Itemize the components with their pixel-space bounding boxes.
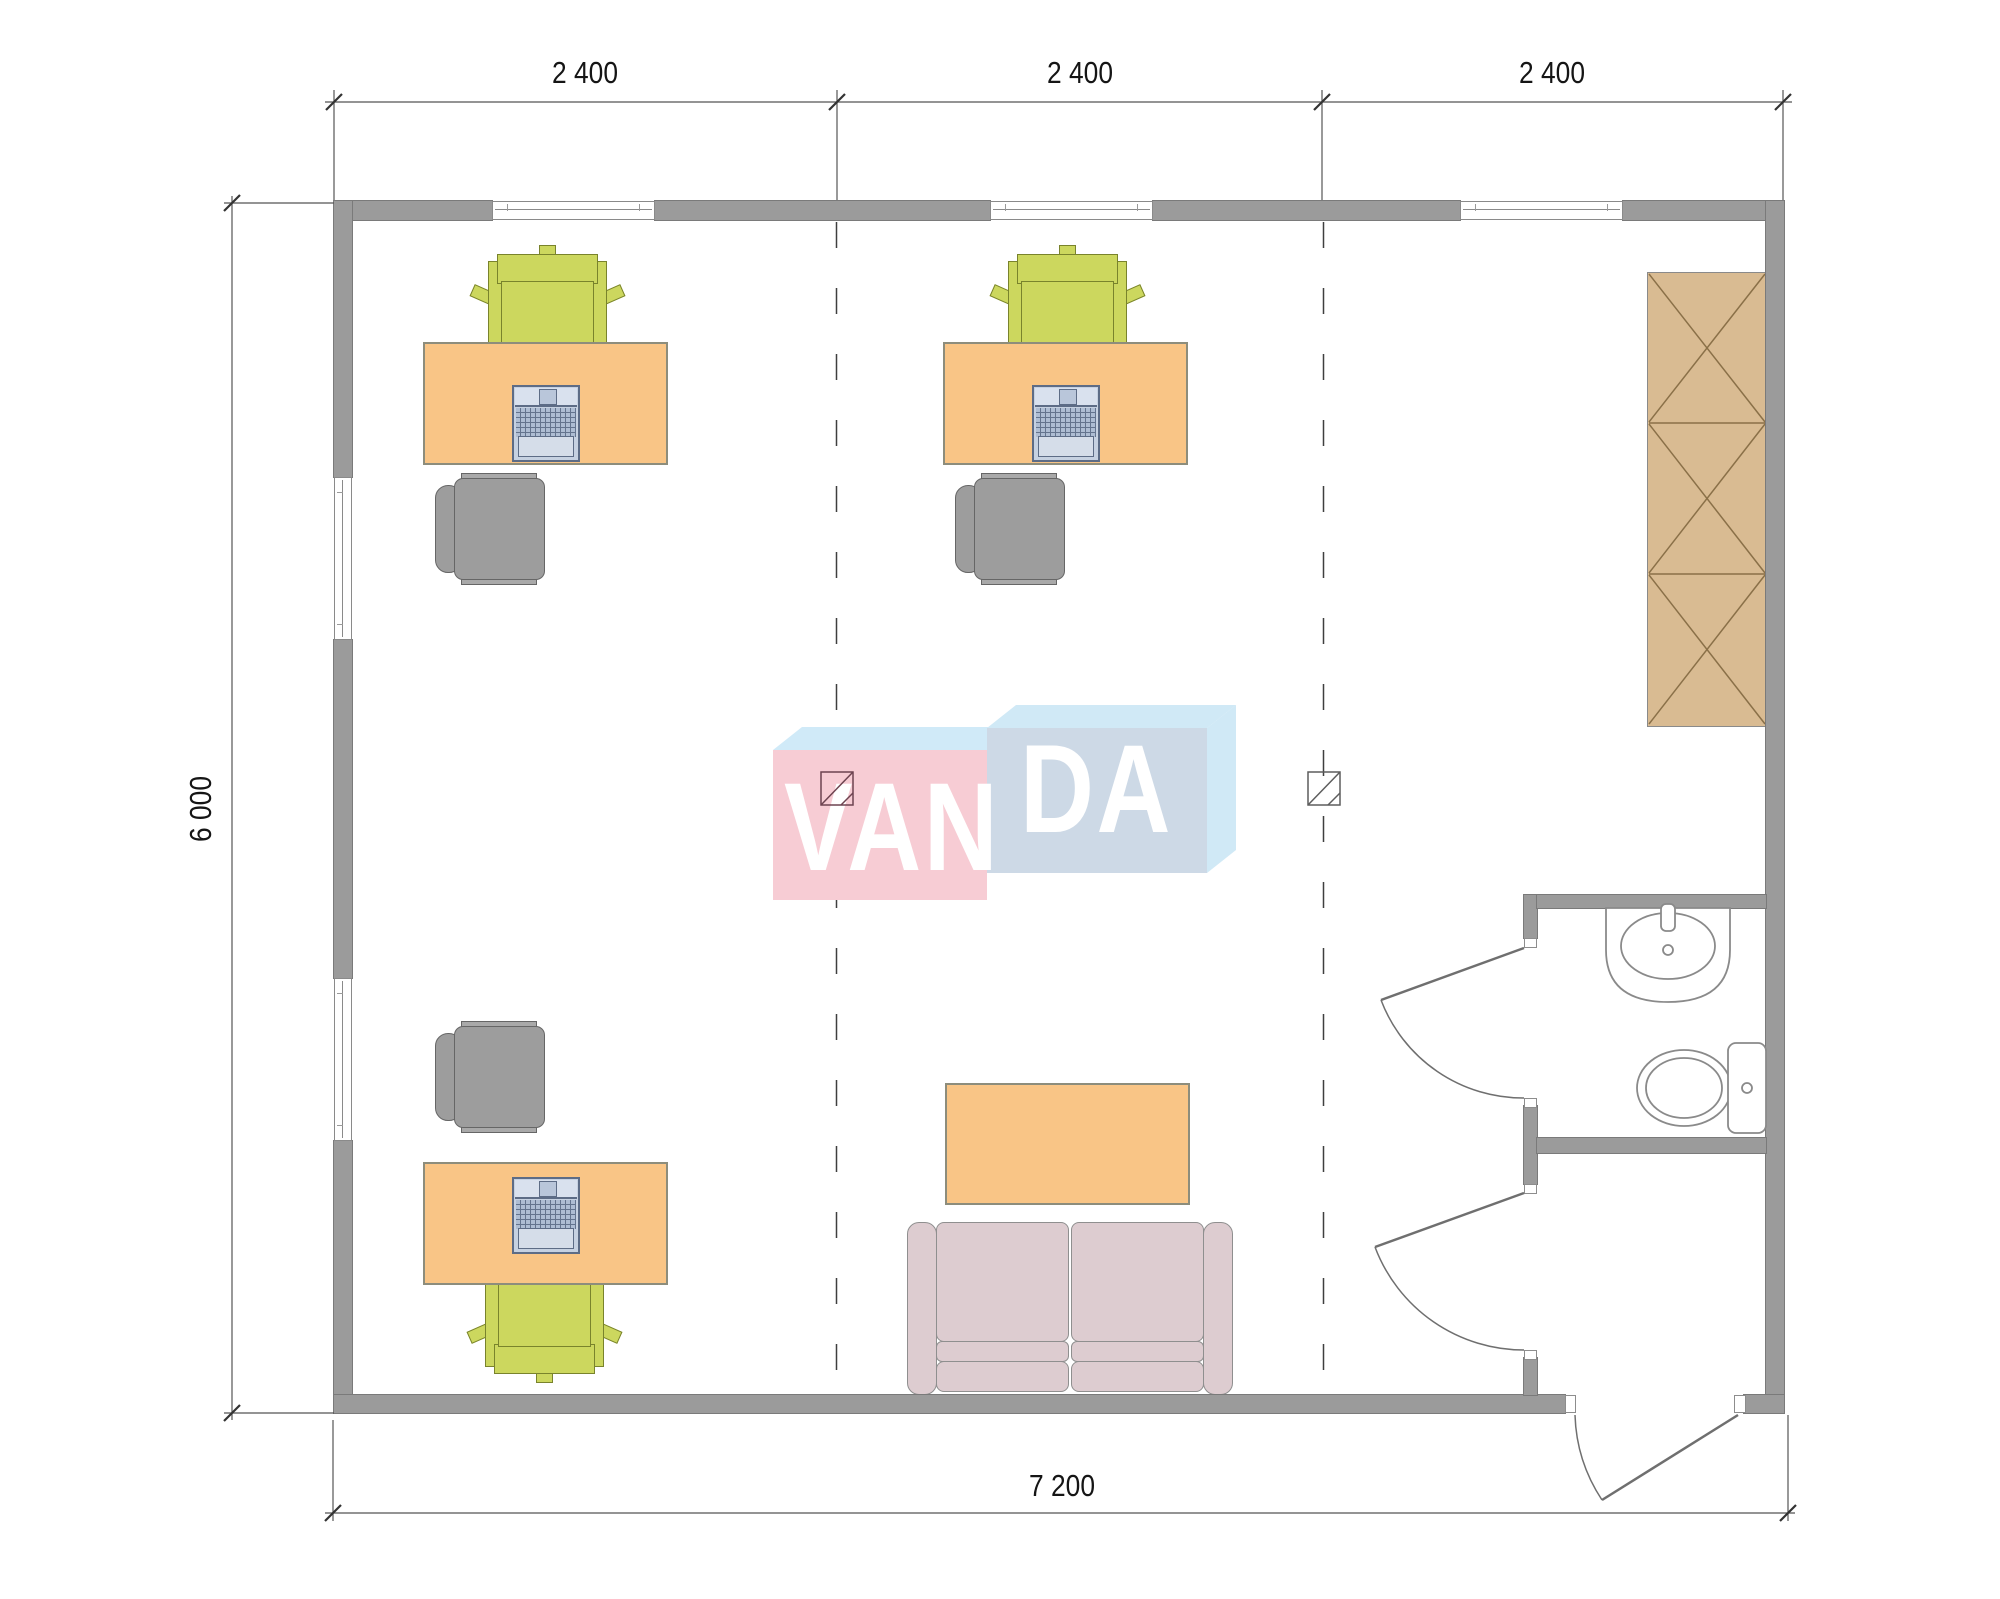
floor-plan: VAN DA [0,0,2000,1599]
column-symbol-right [1308,772,1340,805]
toilet [1637,1043,1766,1133]
door-bathroom [1381,948,1524,1098]
wash-basin [1606,904,1730,1002]
dim-top-3: 2 400 [1519,55,1585,91]
door-entry-hall [1375,1193,1524,1350]
door-entrance [1575,1415,1738,1500]
column-symbol-left [821,772,853,805]
dim-bottom: 7 200 [1029,1468,1095,1504]
dim-top-1: 2 400 [552,55,618,91]
dimension-ticks [224,94,1796,1521]
dim-top-2: 2 400 [1047,55,1113,91]
annotation-layer [0,0,2000,1599]
dimension-lines [224,90,1795,1521]
dim-left: 6 000 [183,776,219,842]
